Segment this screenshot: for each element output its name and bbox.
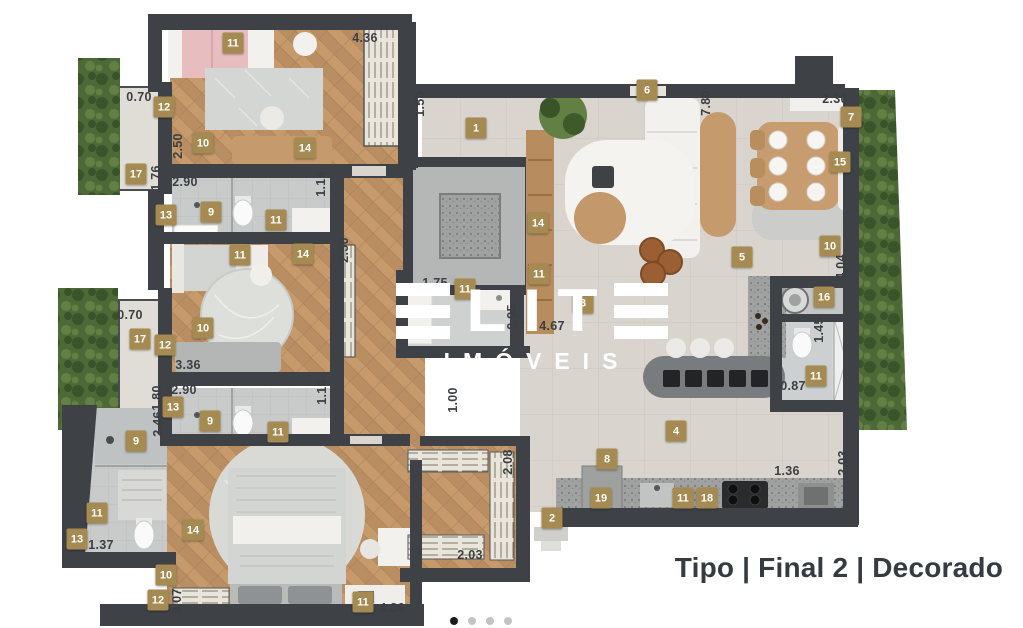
- carousel-dot[interactable]: [504, 617, 512, 625]
- watermark-brand: LIT: [396, 283, 668, 339]
- brand-letter: T: [557, 285, 597, 337]
- plan-caption: Tipo | Final 2 | Decorado: [675, 552, 1003, 584]
- cooktop: [722, 481, 768, 509]
- watermark-logo: LIT IMÓVEIS: [396, 283, 668, 375]
- floorplan-page: 1112101417139111114101712139119111314101…: [0, 0, 1023, 628]
- watermark-subtitle: IMÓVEIS: [396, 348, 668, 375]
- entry-cabinet: [582, 466, 622, 510]
- desk2: [175, 342, 281, 372]
- carousel-dot[interactable]: [450, 617, 458, 625]
- carousel-dot[interactable]: [486, 617, 494, 625]
- brand-letter-e: [396, 283, 450, 339]
- desk1: [232, 136, 332, 166]
- chair1: [260, 106, 284, 130]
- vanity-desk: [378, 528, 410, 566]
- pouf: [293, 32, 317, 56]
- brand-letter: L: [466, 285, 506, 337]
- bed1-headboard: [168, 30, 182, 78]
- brand-letter-e: [614, 283, 668, 339]
- carousel-dots: [450, 617, 512, 625]
- carousel-dot[interactable]: [468, 617, 476, 625]
- brand-letter: I: [523, 285, 541, 337]
- wardrobe1: [364, 28, 402, 146]
- tv-console: [700, 112, 736, 237]
